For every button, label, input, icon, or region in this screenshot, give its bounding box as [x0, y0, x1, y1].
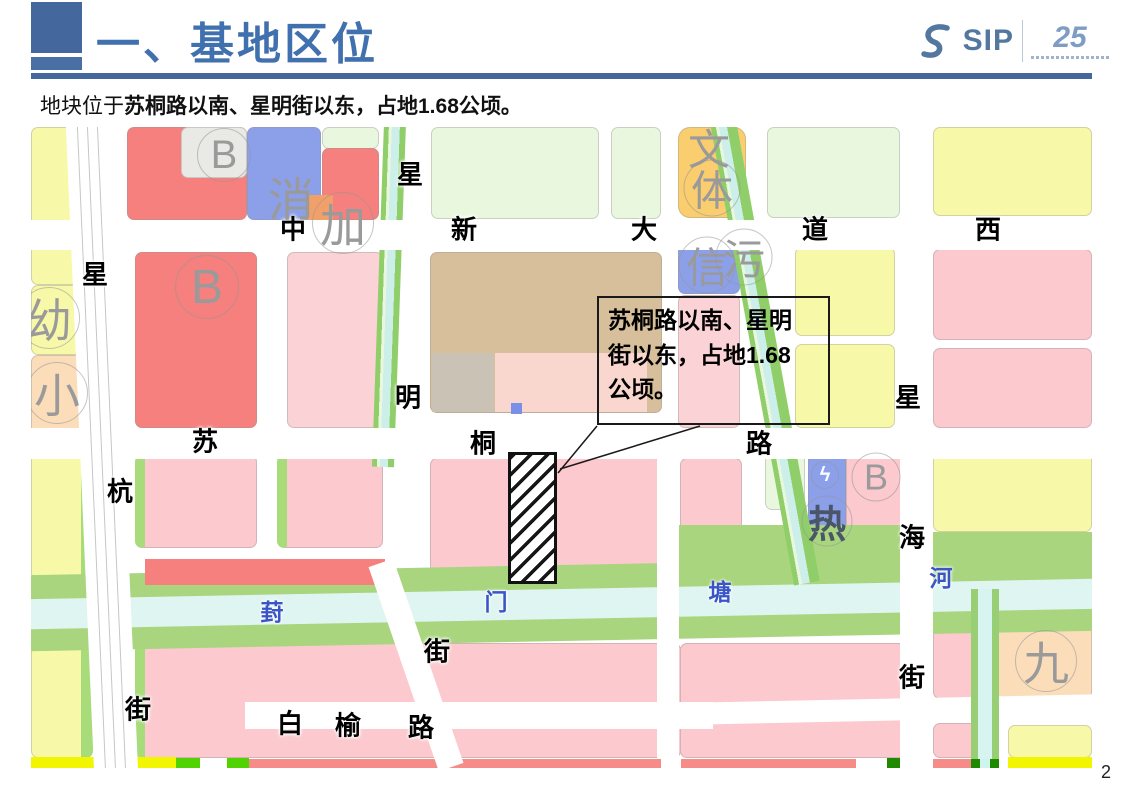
map-parcel-label: B	[197, 128, 251, 182]
logo-divider	[1022, 20, 1023, 62]
site-marker	[508, 452, 557, 584]
map-road-label: 新	[451, 210, 477, 247]
map-parcel-label: 污	[716, 229, 773, 286]
subtitle: 地块位于苏桐路以南、星明街以东，占地1.68公顷。	[40, 90, 522, 120]
map-road-label: 星	[895, 378, 921, 415]
edge-strip	[933, 759, 971, 768]
parcel	[432, 353, 494, 412]
map-road-label: 海	[899, 518, 925, 555]
site-callout: 苏桐路以南、星明街以东，占地1.68公顷。	[597, 296, 830, 425]
map-water-label: 河	[930, 559, 953, 593]
map-road-label: 路	[408, 708, 434, 745]
map-road-label: 杭	[107, 472, 133, 509]
map-road-label: 白	[277, 704, 303, 741]
map-water-label: 门	[485, 583, 508, 617]
subtitle-emphasis: 苏桐路以南、星明街以东，占地1.68公顷。	[124, 95, 522, 118]
parcel	[767, 127, 900, 218]
page-title: 一、基地区位	[96, 8, 378, 72]
title-accent-bar	[31, 57, 82, 70]
map-parcel-label: 九	[1015, 630, 1077, 692]
anniversary-25: 25	[1053, 23, 1086, 53]
edge-strip	[176, 758, 200, 768]
parcel	[611, 127, 661, 219]
parcel	[31, 643, 93, 758]
edge-strip	[980, 758, 990, 768]
map-parcel-label: 消	[268, 164, 314, 230]
map-parcel-label: ϟ	[811, 461, 839, 489]
parcel	[1008, 725, 1092, 758]
map-parcel-label: 体	[684, 160, 741, 217]
canal-vertical-right	[971, 589, 999, 759]
title-accent-square	[31, 2, 82, 53]
parcel	[933, 348, 1092, 428]
map-water-label: 塘	[709, 573, 732, 607]
parcel	[933, 127, 1092, 216]
map-road-label: 榆	[335, 706, 361, 743]
subtitle-prefix: 地块位于	[40, 95, 124, 118]
logo-tagline	[1031, 56, 1109, 59]
map-road-label: 道	[802, 210, 828, 247]
map-road-label: 路	[746, 424, 772, 461]
parcel	[431, 127, 599, 219]
map-road-label: 桐	[470, 424, 496, 461]
edge-strip	[1008, 757, 1092, 768]
map-road-label: 街	[125, 690, 151, 727]
parcel	[145, 559, 385, 585]
map-road-label: 西	[975, 210, 1001, 247]
sip-swirl-icon	[917, 22, 955, 60]
parcel	[287, 252, 383, 428]
map-road-label: 星	[82, 255, 108, 292]
title-underline	[31, 73, 1092, 79]
edge-strip	[681, 759, 856, 768]
parcel	[322, 127, 379, 149]
map-water-label: 葑	[261, 593, 284, 627]
parcel	[135, 455, 257, 548]
map-road-label: 街	[424, 632, 450, 669]
map-parcel-label: 小	[31, 362, 88, 424]
parcel	[933, 452, 1092, 532]
edge-strip	[227, 758, 249, 768]
sip-logo: SIP 25	[917, 16, 1109, 66]
map-road-label: 街	[899, 658, 925, 695]
slide: { "slide": { "title": "一、基地区位", "subtitl…	[0, 0, 1123, 794]
land-use-map: 星杭街星明街中新大道西苏桐路星海街白榆路葑门塘河B消加B幼小文体信污B热九ϟ 苏…	[31, 127, 1092, 768]
parcel	[511, 403, 522, 414]
map-road-label: 大	[631, 210, 657, 247]
map-parcel-label: 加	[312, 192, 374, 254]
parcel	[277, 455, 383, 548]
page-number: 2	[1101, 762, 1111, 783]
parcel	[933, 249, 1092, 340]
map-road-label: 苏	[192, 422, 218, 459]
map-parcel-label: B	[175, 255, 239, 319]
road-baiyu	[245, 702, 713, 729]
sip-logo-text: SIP	[963, 24, 1014, 58]
map-road-label: 明	[395, 378, 421, 415]
map-parcel-label: 热	[802, 496, 853, 547]
map-road-label: 星	[397, 155, 423, 192]
map-parcel-label: B	[852, 453, 901, 502]
